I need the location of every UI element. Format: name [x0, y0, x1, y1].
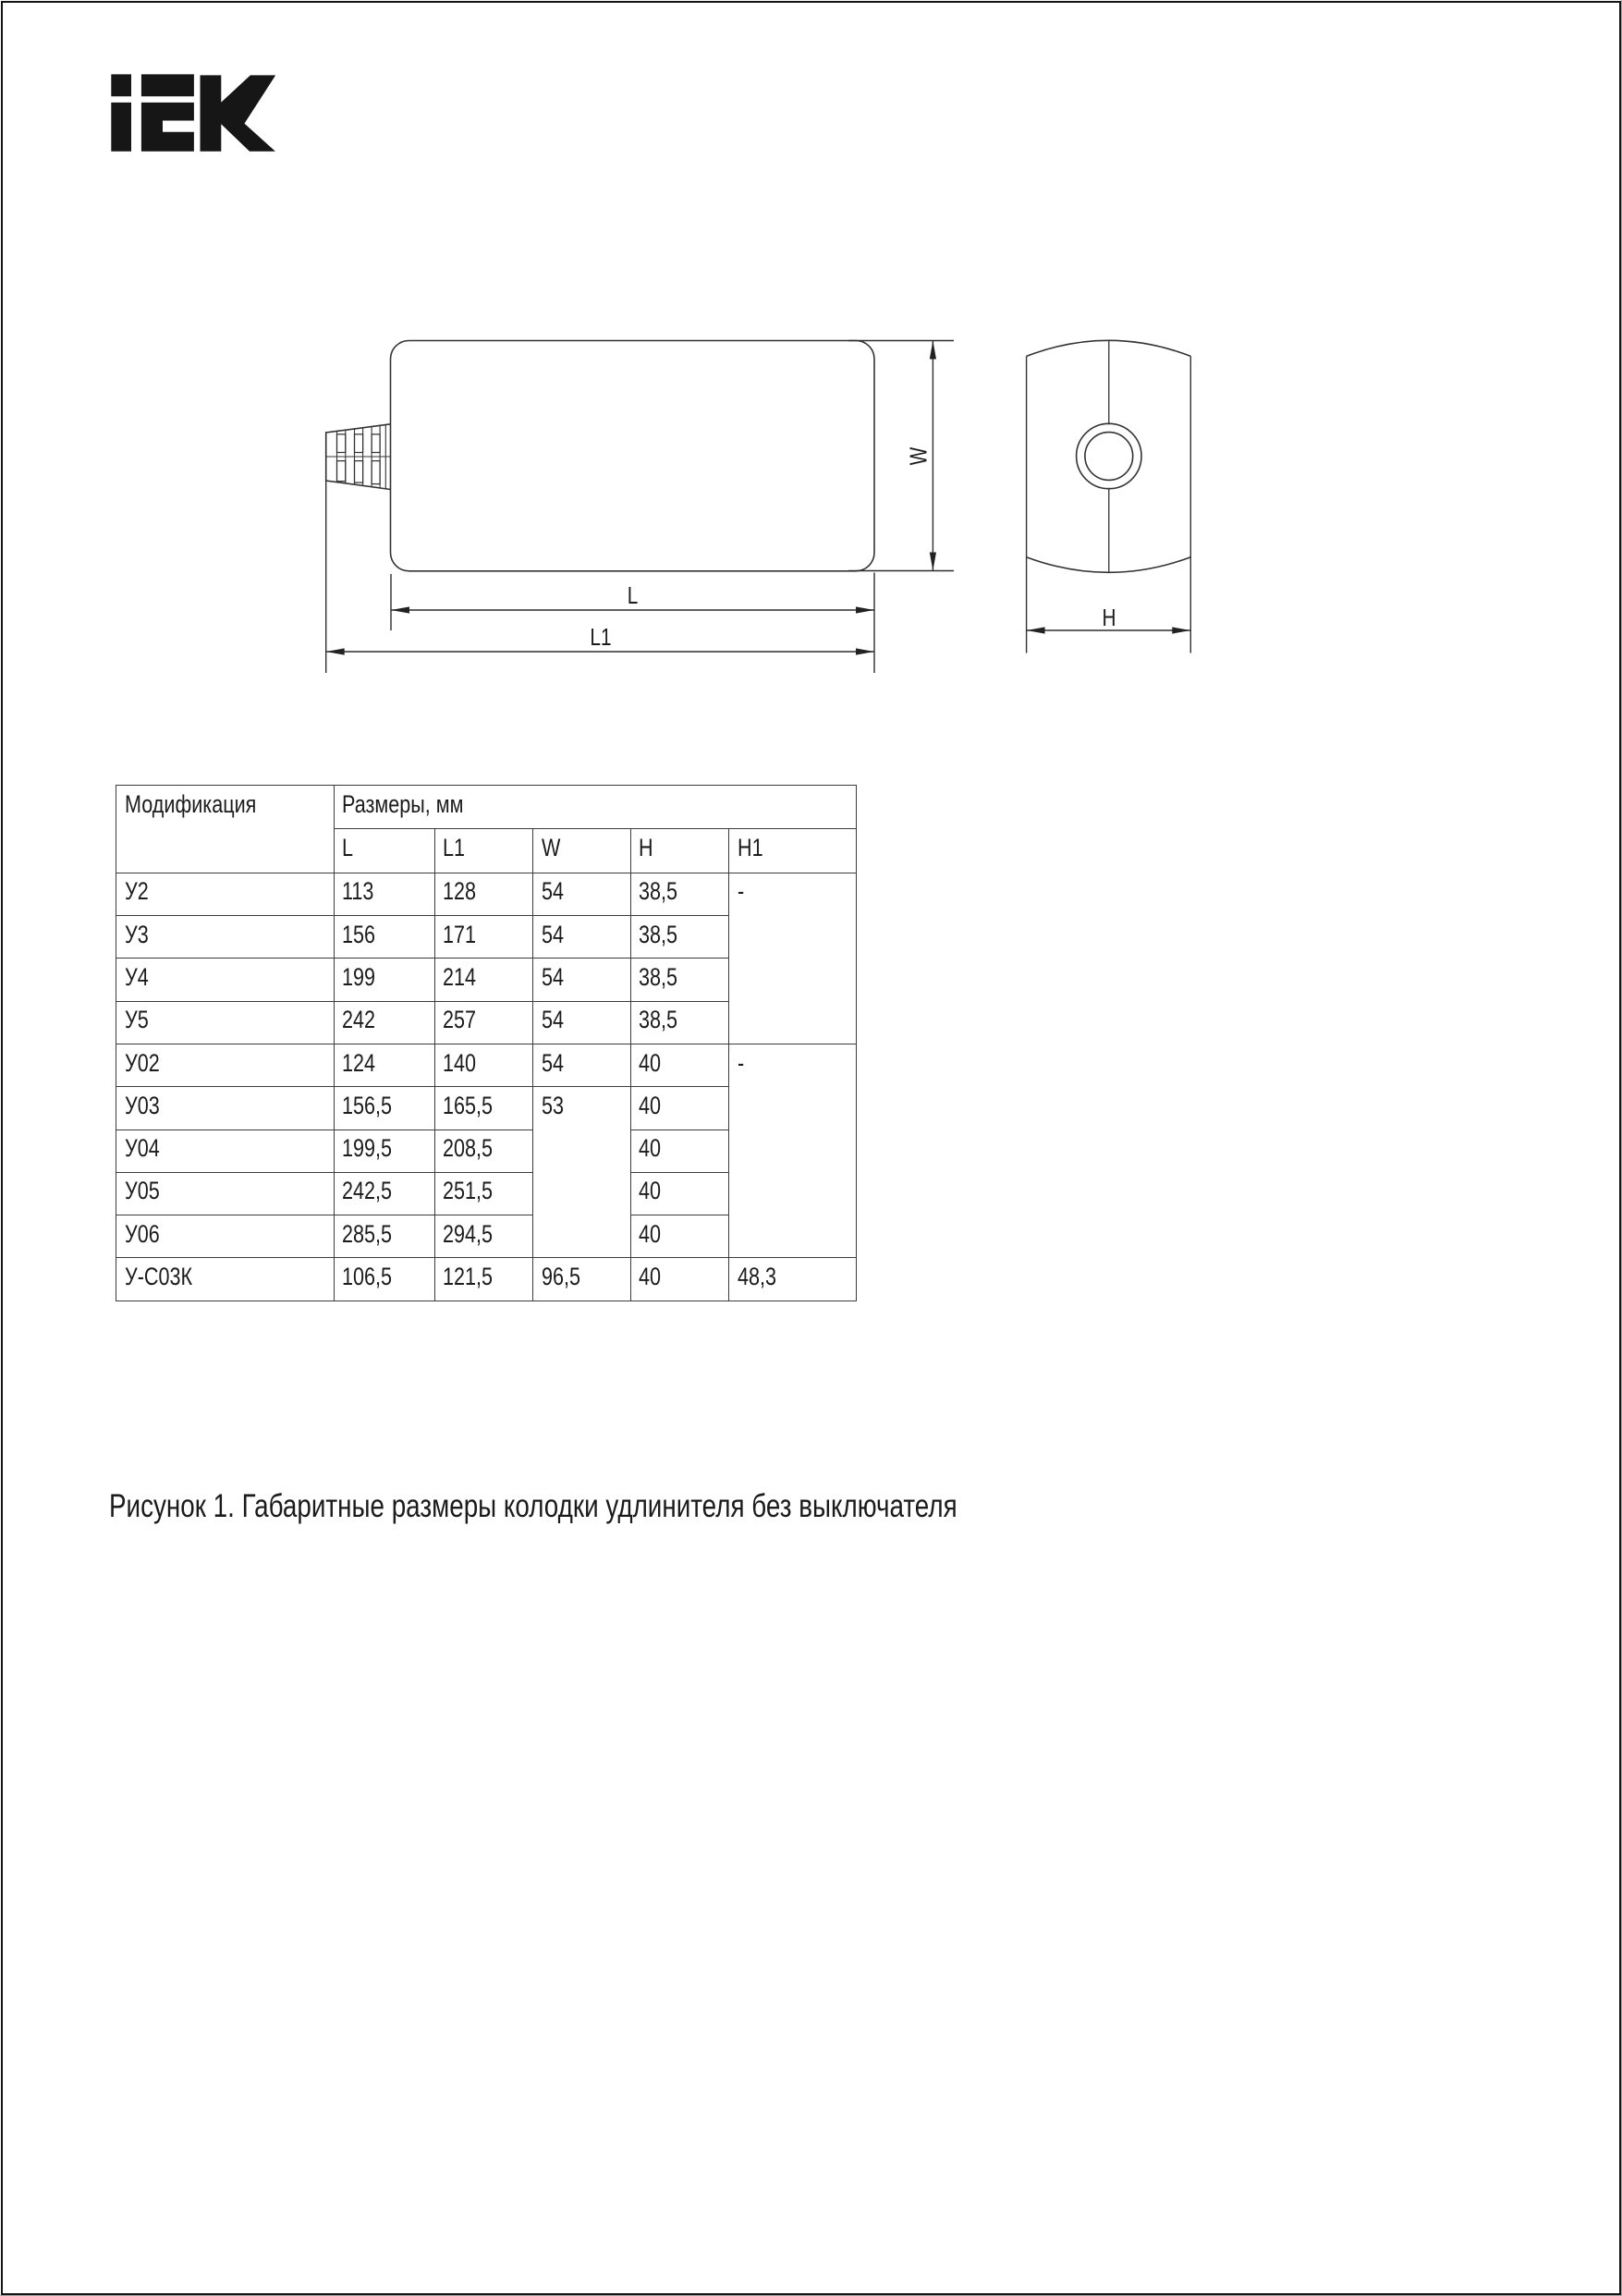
svg-text:H: H	[1102, 605, 1116, 631]
svg-text:W: W	[905, 446, 932, 465]
svg-text:L: L	[628, 582, 639, 609]
svg-text:L1: L1	[590, 624, 611, 651]
